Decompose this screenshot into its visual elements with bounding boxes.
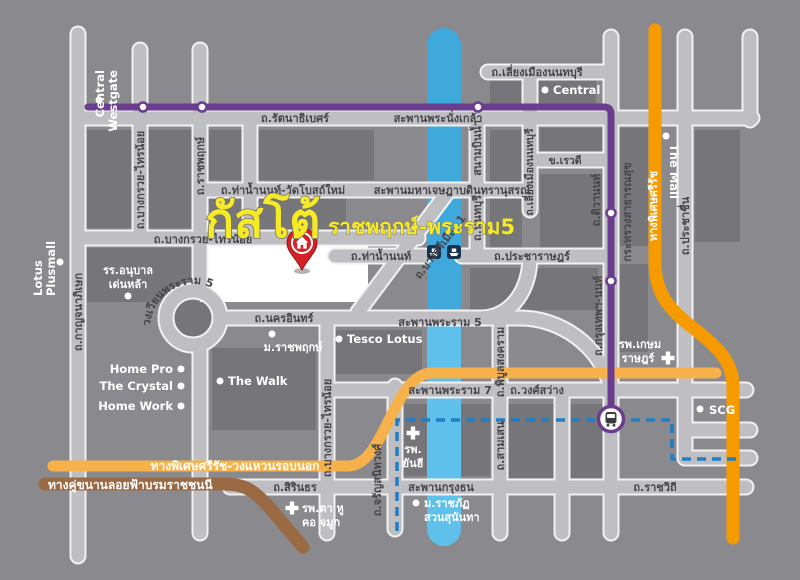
road-label-ratchawithi: ถ.ราชวิถี	[633, 481, 677, 494]
svg-text:Westgate: Westgate	[106, 70, 120, 132]
place-label-anuban-l1: รร.อนุบาล	[103, 264, 153, 278]
place-label-home-pro: Home Pro	[110, 362, 173, 376]
road-label-sanambin-nam: สนามบินน้ำ	[469, 120, 484, 176]
road-label-wongsawang: ถ.วงศ์สว่าง	[510, 384, 564, 397]
route-label-srirat-outer: ทางพิเศษศรีรัช-วงแหวนรอบนอก	[151, 459, 320, 473]
route-label-borom-parallel: ทางคู่ขนานลอยฟ้าบรมราชชนนี	[48, 478, 213, 493]
road-label-thanamnon: ถ.ท่าน้ำนนท์	[351, 248, 411, 263]
road-label-liang-mueang-h: ถ.เลี่ยงเมืองนนทบุรี	[491, 64, 582, 80]
road-label-rama7-bridge: สะพานพระราม 7	[408, 384, 491, 397]
place-label-kasemrad-l2: ราษฎร์	[622, 352, 655, 365]
road-label-pracharat: ถ.ประชาราษฎร์	[494, 250, 570, 263]
place-label-yanhee-l2: ยันฮี	[403, 457, 424, 470]
place-label-the-walk: The Walk	[228, 374, 288, 388]
station-dot	[474, 103, 483, 112]
home-pro-dot	[178, 366, 185, 373]
road-label-bangkruai-sainoi-v1: ถ.บางกรวย-ไทรน้อย	[133, 131, 147, 229]
station-dot	[607, 209, 616, 218]
road-label-bangkruai-sainoi-v2: ถ.บางกรวย-ไทรน้อย	[320, 379, 334, 477]
road-label-krungthep-non: ถ.กรุงเทพฯ-นนท์	[592, 276, 606, 356]
road-label-samsen: ถ.สามเสน	[494, 421, 507, 470]
anuban-dot	[125, 293, 132, 300]
place-label-the-crystal: The Crystal	[100, 379, 174, 393]
map-svg: ถ.รัตนาธิเบศร์ สะพานพระนั่งเกล้า ถ.เลี่ย…	[0, 0, 800, 580]
place-label-m-ratchaphruek: ม.ราชพฤกษ์	[264, 341, 324, 354]
river-north-segment	[427, 28, 461, 320]
m-ratchaphruek-dot	[269, 331, 276, 338]
place-label-ta-hu-l2: คอ จมูก	[302, 516, 340, 530]
home-work-dot	[178, 403, 185, 410]
place-label-moph: กระทรวงสาธารณสุข	[621, 162, 635, 261]
mrt-station-icon	[599, 407, 624, 432]
place-label-suan-sunandha-l2: สวนสุนันทา	[424, 511, 480, 525]
scg-dot	[697, 406, 704, 413]
the-walk-dot	[217, 378, 224, 385]
road-label-rewadee: ข.เรวดี	[548, 154, 581, 167]
station-dot	[139, 103, 148, 112]
the-crystal-dot	[178, 383, 185, 390]
place-label-suan-sunandha-l1: ม.ราชภัฏ	[424, 497, 470, 510]
road-label-prachachuen: ถ.ประชาชื่น	[677, 196, 692, 255]
road-label-liang-mueang-v: ถ.เลี่ยงเมืองนนทบุรี	[521, 128, 537, 216]
place-label-kasemrad-l1: รพ.เกษม	[619, 338, 661, 351]
road-label-charansanitwong: ถ.จรัญสนิทวงศ์	[371, 443, 384, 517]
road-label-sirindhorn: ถ.สิรินธร	[273, 481, 317, 494]
place-label-central: Central	[553, 83, 600, 97]
tesco-dot	[336, 336, 343, 343]
road-label-tiwanon: ถ.ติวานนท์	[590, 174, 603, 227]
place-label-the-mall: The Mall	[667, 144, 681, 199]
place-label-tesco: Tesco Lotus	[347, 332, 423, 346]
place-label-scg: SCG	[709, 403, 735, 417]
map-canvas: ถ.รัตนาธิเบศร์ สะพานพระนั่งเกล้า ถ.เลี่ย…	[0, 0, 800, 580]
svg-text:Plusmall: Plusmall	[44, 241, 58, 296]
road-label-phranangklao-bridge: สะพานพระนั่งเกล้า	[394, 110, 483, 125]
ferry-icon	[447, 245, 461, 259]
place-label-ta-hu-l1: รพ.ตา หู	[302, 502, 344, 516]
road-label-kanchanaphisek: ถ.กาญจนาภิเษก	[72, 273, 85, 351]
road-label-rama5-bridge: สะพานพระราม 5	[398, 316, 481, 329]
svg-text:Lotus: Lotus	[31, 260, 45, 296]
route-label-srirat: ทางพิเศษศรีรัช	[647, 170, 660, 241]
place-label-home-work: Home Work	[98, 399, 173, 413]
project-title-main: กัสโต้	[205, 192, 320, 249]
project-title-sub: ราชพฤกษ์-พระราม5	[328, 215, 515, 239]
place-label-yanhee-l1: รพ.	[404, 443, 421, 456]
road-label-jetsada-bridge: สะพานมหาเจษฎาบดินทรานุสรณ์	[374, 184, 531, 198]
road-label-krungthon-bridge: สะพานกรุงธน	[408, 481, 474, 495]
place-label-anuban-l2: เด่นหล้า	[109, 278, 148, 291]
station-dot	[607, 277, 616, 286]
suan-sunandha-dot	[413, 500, 420, 507]
station-dot	[198, 103, 207, 112]
the-mall-dot	[663, 133, 670, 140]
road-label-phibunsongkhram: ถ.พิบูลสงคราม	[494, 327, 508, 398]
road-label-ratchaphruek: ถ.ราชพฤกษ์	[194, 136, 207, 195]
svg-text:Central: Central	[93, 70, 107, 117]
road-label-nakhon-in: ถ.นครอินทร์	[255, 312, 314, 325]
road-label-rattanathibet: ถ.รัตนาธิเบศร์	[261, 112, 329, 125]
central-dot	[542, 87, 549, 94]
